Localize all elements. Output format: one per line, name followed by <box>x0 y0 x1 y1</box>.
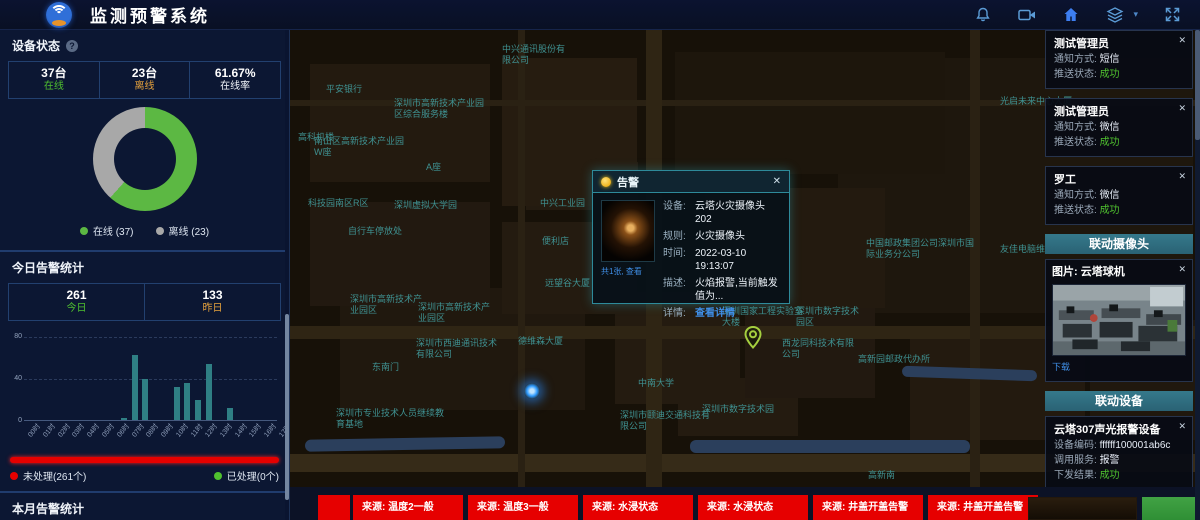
stat-today: 261 今日 <box>9 284 145 320</box>
fullscreen-icon[interactable] <box>1162 6 1182 24</box>
field-value: 云塔火灾摄像头202 <box>695 200 781 226</box>
top-header: 监测预警系统 ▾ <box>0 0 1200 30</box>
alert-popup-titlebar: 告警 ✕ <box>593 171 789 193</box>
field-label: 描述: <box>663 277 689 303</box>
today-alerts-stats: 261 今日 133 昨日 <box>8 283 281 321</box>
bar-x-label: 06时 <box>114 422 131 440</box>
map-label: 便利店 <box>542 236 569 247</box>
bar <box>142 379 148 421</box>
bar-column <box>87 337 98 420</box>
alert-source-card[interactable]: 来源: 井盖开盖告警 <box>928 495 1038 520</box>
ytick-40: 40 <box>10 375 22 382</box>
online-rate: 61.67% <box>190 66 280 80</box>
offline-label: 离线 <box>100 80 190 93</box>
alarm-bulb-icon <box>601 177 611 187</box>
bar-column <box>245 337 256 420</box>
online-count: 37台 <box>9 66 99 80</box>
map-label: 东南门 <box>372 362 399 373</box>
notification-card: ✕罗工通知方式: 微信推送状态: 成功 <box>1045 166 1193 225</box>
device-status-title: 设备状态 <box>12 37 60 54</box>
header-icon-bar: ▾ <box>973 6 1182 24</box>
page-scrollbar-thumb[interactable] <box>1195 30 1200 140</box>
close-icon[interactable]: ✕ <box>1178 171 1186 182</box>
notification-field: 通知方式: 微信 <box>1054 120 1184 135</box>
alert-source-card[interactable]: 来源: 水浸状态 <box>583 495 693 520</box>
bar-x-label: 13时 <box>217 422 234 440</box>
legend-online: 在线 (37) <box>80 223 134 238</box>
legend-handled: 已处理(0个) <box>214 468 279 483</box>
field-value: 微信 <box>1100 190 1120 201</box>
map-label: 深圳市高新技术产业园区综合服务楼 <box>394 98 490 120</box>
bar-column <box>203 337 214 420</box>
bar-column <box>108 337 119 420</box>
device-status-header: 设备状态 ? <box>0 30 289 59</box>
app-logo <box>46 2 72 28</box>
left-panel-scrollbar[interactable] <box>285 30 289 520</box>
map-label: 深圳市西迪通讯技术有限公司 <box>416 338 504 360</box>
field-value: 短信 <box>1100 54 1120 65</box>
bar-x-label: 11时 <box>188 422 205 439</box>
bar-column <box>56 337 67 420</box>
right-panel: ✕测试管理员通知方式: 短信推送状态: 成功✕测试管理员通知方式: 微信推送状态… <box>1045 30 1193 520</box>
yesterday-count: 133 <box>145 288 280 302</box>
map-label: 深圳市高新技术产业园区 <box>418 302 496 324</box>
fire-snapshot-image[interactable] <box>601 200 655 262</box>
bar <box>206 364 212 420</box>
yesterday-label: 昨日 <box>145 302 280 315</box>
field-value: 微信 <box>1100 122 1120 133</box>
hour-bar-chart-bars <box>24 337 277 420</box>
bar <box>121 418 127 420</box>
bar-column <box>235 337 246 420</box>
today-count: 261 <box>9 288 144 302</box>
alert-ticker-bar: 来源: 温度2一般来源: 温度3一般来源: 水浸状态来源: 水浸状态来源: 井盖… <box>290 487 1200 520</box>
field-device: 设备: 云塔火灾摄像头202 <box>663 200 781 226</box>
device-name: 云塔307声光报警设备 <box>1054 422 1184 438</box>
legend-dot-gray <box>156 227 164 235</box>
notification-field: 通知方式: 短信 <box>1054 52 1184 67</box>
map-label: 德维森大厦 <box>518 336 563 347</box>
hour-bar-chart: 80 40 0 00时01时02时03时04时05时06时07时08时09时10… <box>10 331 279 443</box>
field-label: 时间: <box>663 247 689 273</box>
map-label: 深圳市高新技术产业园区 <box>350 294 428 316</box>
close-icon[interactable]: ✕ <box>1178 35 1186 46</box>
month-alerts-header: 本月告警统计 <box>0 491 289 520</box>
field-value: 报警 <box>1100 455 1120 466</box>
close-icon[interactable]: ✕ <box>1178 421 1186 432</box>
close-icon[interactable]: ✕ <box>1178 103 1186 114</box>
donut-legend: 在线 (37) 离线 (23) <box>0 223 289 238</box>
field-label: 设备编码: <box>1054 440 1100 451</box>
map-label: 深圳市数字技术园区 <box>796 306 866 328</box>
field-value: 成功 <box>1100 470 1120 481</box>
bar-x-label: 00时 <box>26 422 43 440</box>
field-label: 调用服务: <box>1054 455 1100 466</box>
unhandled-progress-bar <box>10 457 279 463</box>
month-alerts-title: 本月告警统计 <box>12 500 84 517</box>
hour-bar-chart-plot-area: 80 40 0 <box>24 337 277 421</box>
map-label: 高新南 <box>868 470 895 481</box>
notification-recipient: 测试管理员 <box>1054 104 1184 120</box>
popup-close-icon[interactable]: ✕ <box>773 176 781 187</box>
camera-image-caption: 图片: 云塔球机 <box>1052 265 1186 280</box>
alert-popup-fields: 设备: 云塔火灾摄像头202 规则: 火灾摄像头 时间: 2022-03-10 … <box>663 200 781 320</box>
ytick-80: 80 <box>10 333 22 340</box>
alert-popup: 告警 ✕ 共1张, 查看 设备: 云塔火灾摄像头202 规则: 火灾摄像头 <box>592 170 790 304</box>
bar <box>227 408 233 420</box>
today-alerts-header: 今日告警统计 <box>0 250 289 281</box>
field-value: 2022-03-10 19:13:07 <box>695 247 781 273</box>
legend-dot-green2 <box>214 472 222 480</box>
bar-column <box>24 337 35 420</box>
bar <box>184 383 190 420</box>
bar-column <box>140 337 151 420</box>
bar-column <box>224 337 235 420</box>
linked-camera-section-header[interactable]: 联动摄像头 <box>1045 234 1193 254</box>
field-label: 推送状态: <box>1054 69 1100 80</box>
bar-column <box>267 337 278 420</box>
field-rule: 规则: 火灾摄像头 <box>663 230 781 243</box>
linked-device-section-header[interactable]: 联动设备 <box>1045 391 1193 411</box>
map-label: 中兴工业园 <box>540 198 585 209</box>
online-label: 在线 <box>9 80 99 93</box>
map-label: 西龙同科技术有限公司 <box>782 338 858 360</box>
bar-x-label: 15时 <box>247 422 264 440</box>
field-value: 成功 <box>1100 137 1120 148</box>
bar-column <box>172 337 183 420</box>
field-value: 成功 <box>1100 69 1120 80</box>
linked-camera-card: ✕ 图片: 云塔球机 下载 <box>1045 259 1193 382</box>
map-label: 深圳虚拟大学园 <box>394 200 457 211</box>
chevron-down-icon[interactable]: ▾ <box>1133 9 1138 20</box>
map-label: 深圳市数字技术园 <box>702 404 774 415</box>
field-value: 火灾摄像头 <box>695 230 745 243</box>
notification-field: 通知方式: 微信 <box>1054 188 1184 203</box>
notification-recipient: 罗工 <box>1054 172 1184 188</box>
device-location-marker[interactable] <box>524 383 540 399</box>
bar-column <box>77 337 88 420</box>
legend-dot-red <box>10 472 18 480</box>
notification-bell-icon[interactable] <box>973 6 993 24</box>
bar-column <box>45 337 56 420</box>
alert-snapshot-column: 共1张, 查看 <box>601 200 655 320</box>
bar-column <box>161 337 172 420</box>
map-label: 高新园邮政代办所 <box>858 354 930 365</box>
ytick-0: 0 <box>10 417 22 424</box>
field-value: 成功 <box>1100 205 1120 216</box>
device-field: 设备编码: ffffff100001ab6c <box>1054 438 1184 453</box>
alert-popup-title: 告警 <box>617 174 639 190</box>
bar-x-label: 01时 <box>40 422 57 440</box>
progress-legend: 未处理(261个) 已处理(0个) <box>10 468 279 483</box>
map-label: 中兴通讯股份有限公司 <box>502 44 568 66</box>
map-label: 远望谷大厦 <box>545 278 590 289</box>
bar-x-label: 05时 <box>100 422 117 440</box>
layers-icon[interactable] <box>1105 6 1125 24</box>
hour-bar-chart-xaxis: 00时01时02时03时04时05时06时07时08时09时10时11时12时1… <box>24 423 277 433</box>
view-detail-link[interactable]: 查看详情 <box>695 307 735 320</box>
notification-card: ✕测试管理员通知方式: 微信推送状态: 成功 <box>1045 98 1193 157</box>
map-water-ribbon <box>690 440 970 453</box>
bar-column <box>129 337 140 420</box>
device-donut-chart <box>93 107 197 211</box>
alert-card-partial <box>318 495 350 520</box>
notification-card: ✕测试管理员通知方式: 短信推送状态: 成功 <box>1045 30 1193 89</box>
unhandled-label: 未处理(261个) <box>23 468 86 483</box>
notification-field: 推送状态: 成功 <box>1054 135 1184 150</box>
alert-source-card[interactable]: 来源: 井盖开盖告警 <box>813 495 923 520</box>
online-rate-label: 在线率 <box>190 80 280 93</box>
today-label: 今日 <box>9 302 144 315</box>
alert-source-card[interactable]: 来源: 温度3一般 <box>468 495 578 520</box>
field-label: 通知方式: <box>1054 54 1100 65</box>
bar <box>132 355 138 420</box>
stat-yesterday: 133 昨日 <box>145 284 280 320</box>
ticker-snapshot-dark[interactable] <box>1028 497 1137 520</box>
stat-offline: 23台 离线 <box>100 62 191 98</box>
map-water-ribbon <box>305 436 505 451</box>
bar-column <box>119 337 130 420</box>
bar-column <box>182 337 193 420</box>
field-label: 下发结果: <box>1054 470 1100 481</box>
field-description: 描述: 火焰报警,当前触发值为... <box>663 277 781 303</box>
help-icon[interactable]: ? <box>66 40 78 52</box>
alert-popup-body: 共1张, 查看 设备: 云塔火灾摄像头202 规则: 火灾摄像头 时间: 202… <box>593 193 789 327</box>
handled-label: 已处理(0个) <box>227 468 279 483</box>
left-scrollbar-thumb[interactable] <box>285 314 289 500</box>
legend-dot-green <box>80 227 88 235</box>
page-title: 监测预警系统 <box>90 2 210 27</box>
left-stats-panel: 设备状态 ? 37台 在线 23台 离线 61.67% 在线率 在线 (37) <box>0 30 290 520</box>
bar-column <box>98 337 109 420</box>
field-label: 规则: <box>663 230 689 243</box>
field-label: 通知方式: <box>1054 190 1100 201</box>
field-detail: 详情: 查看详情 <box>663 307 781 320</box>
bar-x-label: 07时 <box>129 422 146 440</box>
map-pin-icon[interactable] <box>742 325 764 358</box>
video-camera-icon[interactable] <box>1017 6 1037 24</box>
camera-snapshot-image[interactable] <box>1052 284 1186 356</box>
map-label: 高科机楼 <box>298 132 334 143</box>
bar-column <box>256 337 267 420</box>
bar-column <box>214 337 225 420</box>
alert-source-card[interactable]: 来源: 温度2一般 <box>353 495 463 520</box>
device-donut-wrap <box>0 107 289 213</box>
legend-offline: 离线 (23) <box>156 223 210 238</box>
device-field: 下发结果: 成功 <box>1054 468 1184 483</box>
bar-x-label: 08时 <box>144 422 161 440</box>
notification-list: ✕测试管理员通知方式: 短信推送状态: 成功✕测试管理员通知方式: 微信推送状态… <box>1045 30 1193 234</box>
notification-recipient: 测试管理员 <box>1054 36 1184 52</box>
close-icon[interactable]: ✕ <box>1178 264 1186 275</box>
field-value: 火焰报警,当前触发值为... <box>695 277 781 303</box>
snapshot-view-link[interactable]: 共1张, 查看 <box>601 266 655 277</box>
bar-column <box>35 337 46 420</box>
today-alerts-title: 今日告警统计 <box>12 259 84 276</box>
alert-source-card[interactable]: 来源: 水浸状态 <box>698 495 808 520</box>
bar-x-label: 03时 <box>70 422 87 440</box>
map-label: 中国邮政集团公司深圳市国际业务分公司 <box>866 238 976 260</box>
bar-x-label: 16时 <box>262 422 279 440</box>
bar-x-label: 02时 <box>55 422 72 440</box>
device-status-stats: 37台 在线 23台 离线 61.67% 在线率 <box>8 61 281 99</box>
bar-column <box>151 337 162 420</box>
page-scrollbar[interactable] <box>1195 30 1200 520</box>
field-label: 通知方式: <box>1054 122 1100 133</box>
bar <box>174 387 180 420</box>
notification-field: 推送状态: 成功 <box>1054 203 1184 218</box>
linked-device-card: ✕云塔307声光报警设备设备编码: ffffff100001ab6c调用服务: … <box>1045 416 1193 490</box>
field-label: 设备: <box>663 200 689 226</box>
map-label: 中南大学 <box>638 378 674 389</box>
download-link[interactable]: 下载 <box>1052 360 1070 373</box>
bar-x-label: 09时 <box>159 422 176 440</box>
field-label: 推送状态: <box>1054 205 1100 216</box>
map-water-ribbon <box>902 366 1037 382</box>
field-label: 推送状态: <box>1054 137 1100 148</box>
device-field: 调用服务: 报警 <box>1054 453 1184 468</box>
bar-column <box>66 337 77 420</box>
bar-x-label: 12时 <box>203 422 220 440</box>
stat-online-rate: 61.67% 在线率 <box>190 62 280 98</box>
legend-online-label: 在线 (37) <box>93 223 134 238</box>
map-label: 深圳市专业技术人员继续教育基地 <box>336 408 446 430</box>
bar-x-label: 10时 <box>174 422 191 440</box>
map-label: A座 <box>426 162 441 173</box>
ticker-snapshot-green[interactable] <box>1142 497 1195 520</box>
map-label: 科技园南区R区 <box>308 198 369 209</box>
map-label: 自行车停放处 <box>348 226 402 237</box>
field-time: 时间: 2022-03-10 19:13:07 <box>663 247 781 273</box>
field-label: 详情: <box>663 307 689 320</box>
bar-column <box>193 337 204 420</box>
offline-count: 23台 <box>100 66 190 80</box>
field-value: ffffff100001ab6c <box>1100 440 1171 451</box>
legend-unhandled: 未处理(261个) <box>10 468 86 483</box>
bar-x-label: 04时 <box>85 422 102 440</box>
notification-field: 推送状态: 成功 <box>1054 67 1184 82</box>
map-label: 平安银行 <box>326 84 362 95</box>
bar <box>195 400 201 420</box>
monitoring-dashboard: 监测预警系统 ▾ 设备状态 ? <box>0 0 1200 520</box>
stat-online: 37台 在线 <box>9 62 100 98</box>
legend-offline-label: 离线 (23) <box>169 223 210 238</box>
home-icon[interactable] <box>1061 6 1081 24</box>
